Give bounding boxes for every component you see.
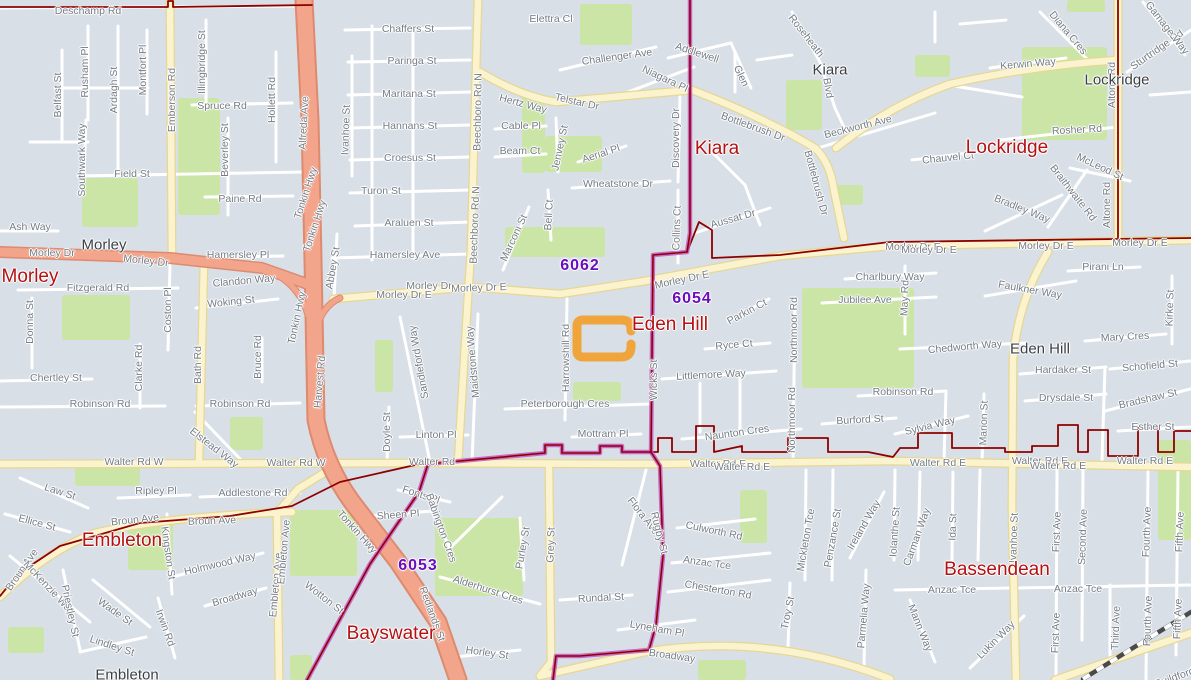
map-graphics bbox=[0, 0, 1191, 680]
shopping-centre-building bbox=[577, 320, 631, 357]
map-canvas[interactable]: Deschamp RdBelfast StRusham PlSouthwark … bbox=[0, 0, 1191, 680]
park bbox=[375, 340, 393, 392]
park bbox=[802, 288, 914, 388]
park bbox=[698, 660, 746, 680]
park bbox=[1067, 0, 1105, 12]
park bbox=[230, 417, 263, 450]
park bbox=[1158, 440, 1191, 540]
park bbox=[75, 466, 140, 486]
park bbox=[522, 95, 545, 173]
park bbox=[786, 80, 822, 130]
park bbox=[435, 518, 523, 596]
building-outline bbox=[577, 320, 631, 357]
park bbox=[580, 4, 632, 45]
park bbox=[545, 136, 602, 172]
park bbox=[62, 295, 130, 340]
park bbox=[82, 178, 138, 227]
park bbox=[573, 382, 621, 401]
park bbox=[740, 490, 767, 543]
park bbox=[915, 55, 950, 77]
park bbox=[290, 510, 357, 576]
park bbox=[8, 627, 44, 653]
